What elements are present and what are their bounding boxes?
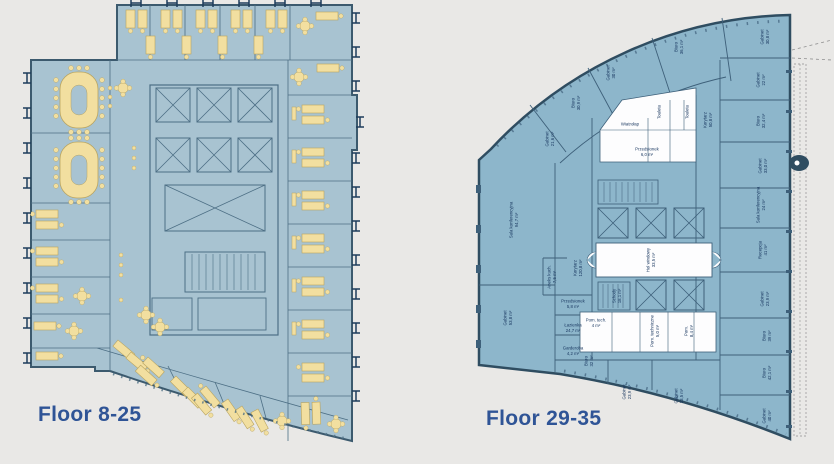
room-label: Gabinet33,5 m² <box>674 388 684 404</box>
room-label: Korytarz50,8 m² <box>703 112 713 128</box>
svg-text:Biuro: Biuro <box>762 330 767 341</box>
floorplan-left <box>23 0 364 441</box>
svg-text:Biuro: Biuro <box>756 115 761 126</box>
svg-text:Garderoba: Garderoba <box>563 346 584 351</box>
svg-text:40 m²: 40 m² <box>767 410 772 422</box>
svg-text:4,2 m²: 4,2 m² <box>567 351 580 356</box>
room-label: Gabinet33,0 m² <box>758 158 768 174</box>
room-label: Gabinet53,8 m² <box>503 310 513 326</box>
svg-text:4 m²: 4 m² <box>592 323 601 328</box>
svg-text:Aneks kuch.: Aneks kuch. <box>547 265 552 288</box>
svg-text:33,0 m²: 33,0 m² <box>763 158 768 173</box>
svg-text:Biuro: Biuro <box>571 97 576 108</box>
svg-text:Sala konferencyjna: Sala konferencyjna <box>509 201 514 238</box>
svg-text:23,9 m²: 23,9 m² <box>765 291 770 306</box>
caption-floor-29-35: Floor 29-35 <box>486 407 601 431</box>
svg-text:Gabinet: Gabinet <box>760 291 765 307</box>
svg-text:Gabinet: Gabinet <box>545 131 550 147</box>
svg-text:Korytarz: Korytarz <box>573 260 578 276</box>
svg-text:33,5 m²: 33,5 m² <box>679 388 684 403</box>
svg-text:Gabinet: Gabinet <box>762 408 767 424</box>
svg-text:Gabinet: Gabinet <box>606 65 611 81</box>
room-label: Toaleta <box>685 104 690 118</box>
svg-text:Gabinet: Gabinet <box>674 388 679 404</box>
room-label: Wiatrołap <box>621 122 640 127</box>
svg-text:30,8 m²: 30,8 m² <box>765 29 770 44</box>
room-label: Biuro32 m² <box>584 355 594 367</box>
svg-text:53,8 m²: 53,8 m² <box>508 310 513 325</box>
svg-text:Przedsionek: Przedsionek <box>635 147 659 152</box>
svg-text:Hol windowy: Hol windowy <box>646 247 651 272</box>
floorplan-right: Gabinet21,6 m² Biuro30,9 m² Gabinet30 m²… <box>476 15 832 439</box>
room-label: Gabinet23,9 m² <box>622 384 632 400</box>
svg-text:33,5 m²: 33,5 m² <box>651 252 656 267</box>
svg-text:22 m²: 22 m² <box>761 74 766 86</box>
room-label: Gabinet23,9 m² <box>760 291 770 307</box>
room-label: Toaleta <box>657 104 662 118</box>
svg-text:Sala konferencyjna: Sala konferencyjna <box>756 186 761 223</box>
room-label: Pom.8,4 m² <box>684 324 694 337</box>
room-label: Korytarz120,8 m² <box>573 259 583 277</box>
room-label: Gabinet21,6 m² <box>545 131 555 147</box>
svg-text:24,7 m²: 24,7 m² <box>566 328 581 333</box>
room-label: Schody18,1 m² <box>612 288 622 303</box>
svg-text:Gabinet: Gabinet <box>760 29 765 45</box>
svg-text:50,8 m²: 50,8 m² <box>708 112 713 127</box>
svg-text:Schody: Schody <box>612 288 617 303</box>
svg-text:Pom. tech.: Pom. tech. <box>586 318 607 323</box>
svg-text:6,0 m²: 6,0 m² <box>641 152 654 157</box>
svg-text:Gabinet: Gabinet <box>756 72 761 88</box>
svg-text:36,1 m²: 36,1 m² <box>679 39 684 54</box>
svg-text:Biuro: Biuro <box>584 355 589 366</box>
svg-text:Biuro: Biuro <box>762 367 767 378</box>
svg-text:Gabinet: Gabinet <box>503 310 508 326</box>
caption-floor-8-25: Floor 8-25 <box>38 403 141 427</box>
svg-text:24 m²: 24 m² <box>761 199 766 211</box>
svg-text:30,9 m²: 30,9 m² <box>576 95 581 110</box>
svg-text:Łazienka: Łazienka <box>564 323 582 328</box>
svg-text:8,4 m²: 8,4 m² <box>689 324 694 337</box>
svg-text:Biuro: Biuro <box>674 41 679 52</box>
svg-text:Recepcja: Recepcja <box>758 240 763 259</box>
svg-text:Toaleta: Toaleta <box>657 104 662 118</box>
svg-text:5,0 m²: 5,0 m² <box>655 324 660 337</box>
svg-text:120,8 m²: 120,8 m² <box>578 259 583 277</box>
room-label: Biuro39 m² <box>762 330 772 342</box>
svg-text:Wiatrołap: Wiatrołap <box>621 122 640 127</box>
svg-text:Korytarz: Korytarz <box>703 112 708 128</box>
svg-text:32 m²: 32 m² <box>589 355 594 367</box>
svg-text:7,5 m²: 7,5 m² <box>552 270 557 283</box>
room-label: Łazienka24,7 m² <box>564 323 582 333</box>
svg-text:21,6 m²: 21,6 m² <box>550 131 555 146</box>
svg-text:94,7 m²: 94,7 m² <box>514 212 519 227</box>
svg-text:42,1 m²: 42,1 m² <box>767 365 772 380</box>
svg-text:18,1 m²: 18,1 m² <box>617 288 622 303</box>
svg-text:30 m²: 30 m² <box>611 67 616 79</box>
floorplans-svg: Gabinet21,6 m² Biuro30,9 m² Gabinet30 m²… <box>0 0 834 464</box>
svg-text:32,4 m²: 32,4 m² <box>761 113 766 128</box>
svg-text:39 m²: 39 m² <box>767 330 772 342</box>
floorplan-canvas: Gabinet21,6 m² Biuro30,9 m² Gabinet30 m²… <box>0 0 834 464</box>
svg-text:5,8 m²: 5,8 m² <box>567 304 580 309</box>
right-plan-outline <box>479 15 790 439</box>
svg-text:41 m²: 41 m² <box>763 244 768 256</box>
svg-text:Gabinet: Gabinet <box>758 158 763 174</box>
right-annotations <box>789 40 832 436</box>
svg-text:Pom. techniczne: Pom. techniczne <box>650 315 655 347</box>
svg-text:Gabinet: Gabinet <box>622 384 627 400</box>
svg-text:Przedsionek: Przedsionek <box>561 299 585 304</box>
room-label: Gabinet30,8 m² <box>760 29 770 45</box>
svg-text:Pom.: Pom. <box>684 326 689 336</box>
svg-text:23,9 m²: 23,9 m² <box>627 384 632 399</box>
svg-text:Toaleta: Toaleta <box>685 104 690 118</box>
